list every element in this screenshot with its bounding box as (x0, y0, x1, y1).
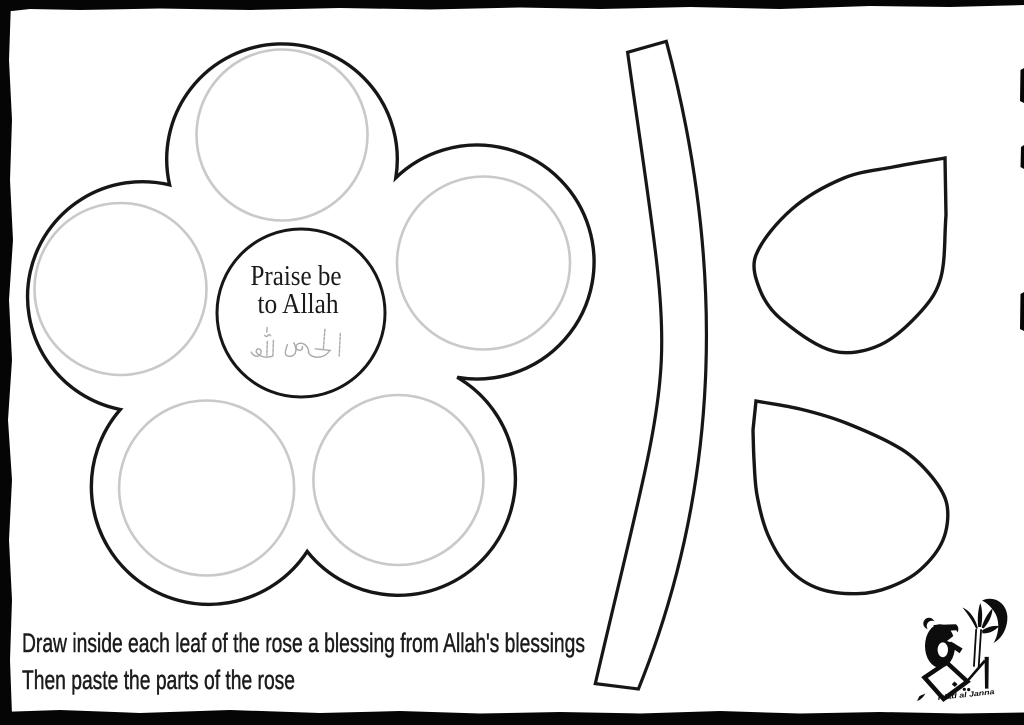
svg-text:to Allah: to Allah (258, 288, 339, 320)
svg-text:Riad al Janna: Riad al Janna (937, 687, 995, 702)
svg-text:Then paste the parts of the ro: Then paste the parts of the rose (22, 665, 295, 695)
svg-text:Draw inside each leaf of the r: Draw inside each leaf of the rose a bles… (22, 628, 585, 658)
